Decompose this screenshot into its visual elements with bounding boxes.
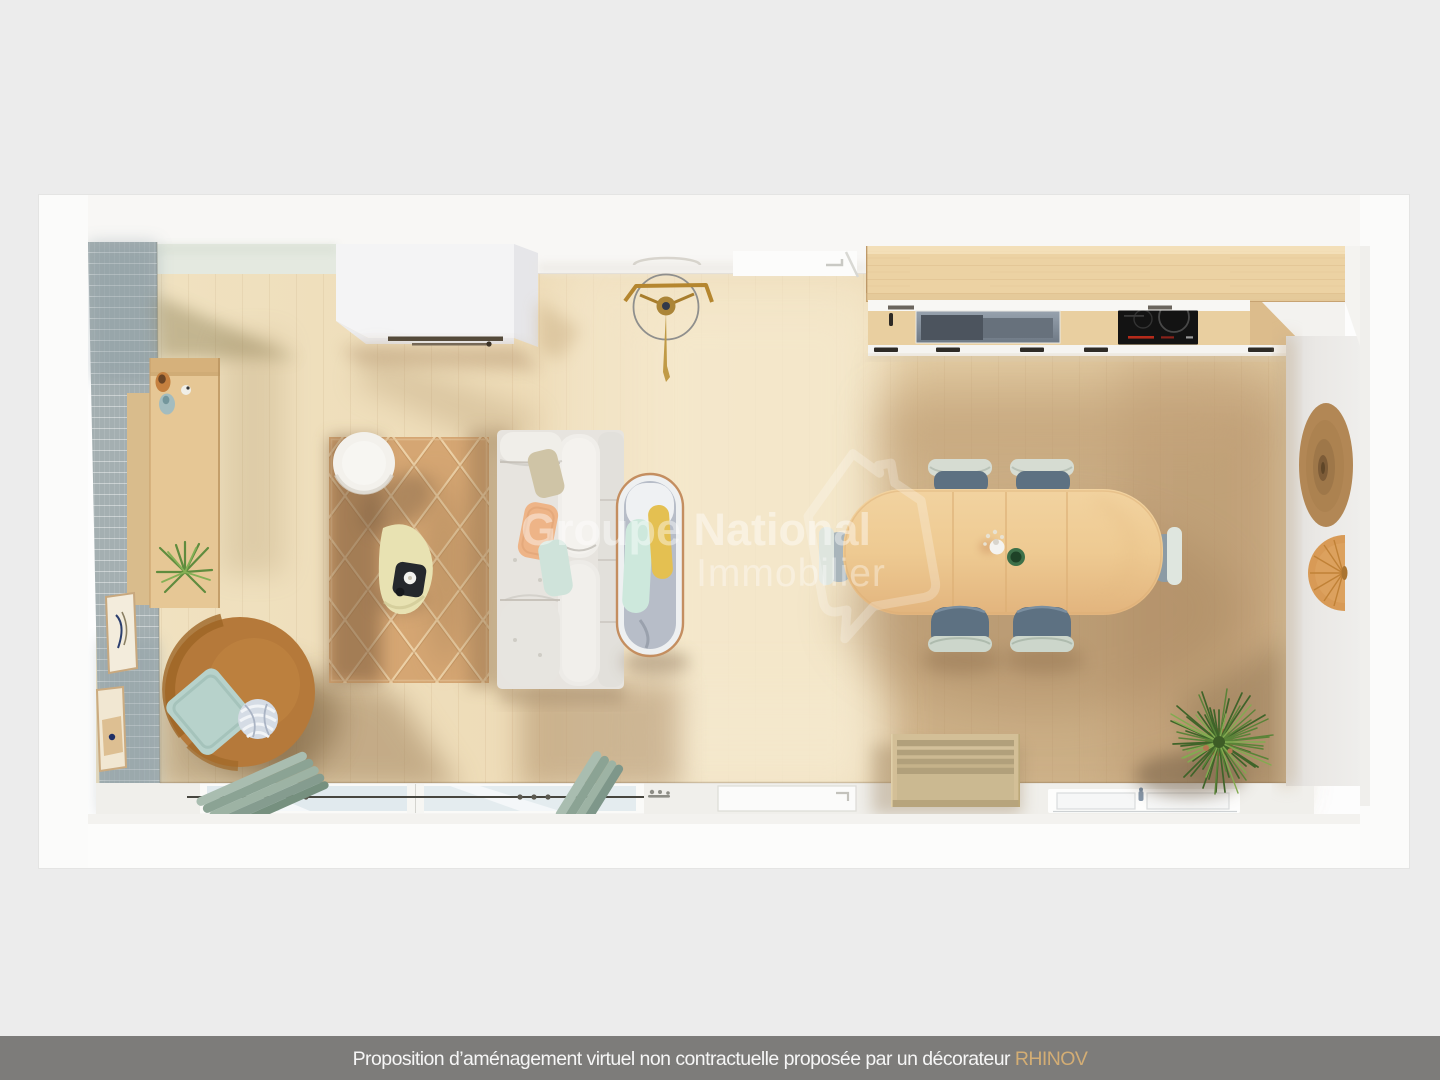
- svg-text:Immobilier: Immobilier: [696, 552, 886, 595]
- svg-text:Groupe National: Groupe National: [521, 504, 871, 555]
- svg-text:Proposition d’aménagement virt: Proposition d’aménagement virtuel non co…: [353, 1048, 1088, 1070]
